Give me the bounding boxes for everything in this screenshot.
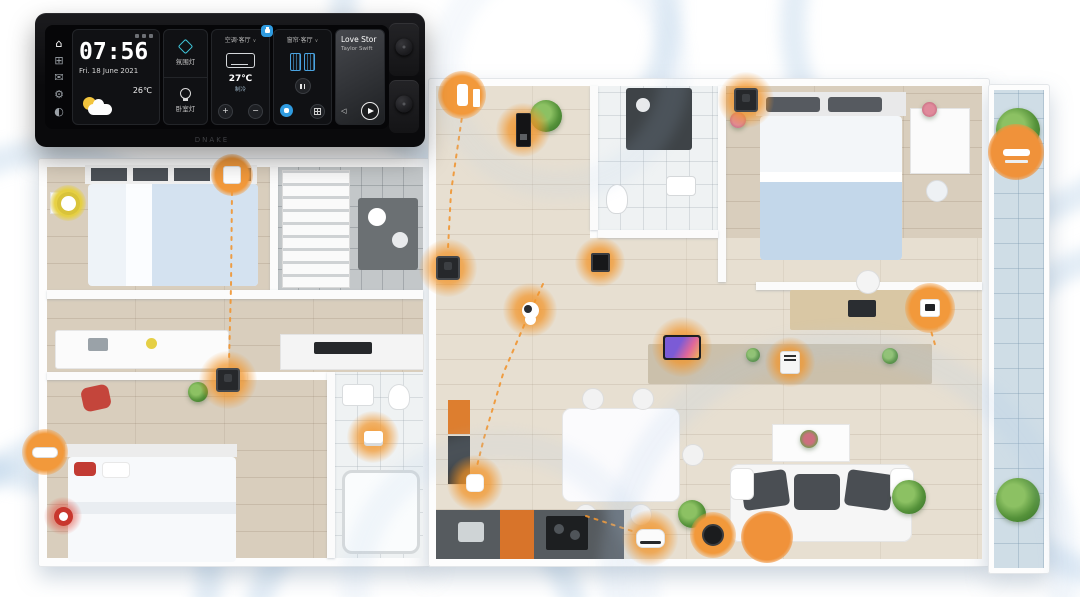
curtain-title[interactable]: 窗帘·客厅 ∨ — [287, 35, 319, 44]
flat-sensor-icon — [364, 431, 383, 443]
cooktop — [546, 516, 588, 550]
study-wall-switch-marker[interactable] — [199, 351, 257, 409]
toilet1 — [606, 184, 628, 214]
light-label: 氛围灯 — [176, 56, 196, 66]
balcony-device-marker[interactable] — [988, 124, 1044, 180]
ac-temperature: 27℃ — [229, 74, 252, 84]
chevron-down-icon: ∨ — [253, 38, 257, 44]
apps-icon[interactable]: ⊞ — [54, 55, 63, 66]
song-title: Love Stor — [341, 35, 379, 44]
living-speaker-marker[interactable] — [690, 512, 736, 558]
curtain-icon — [290, 53, 315, 71]
sideboard-tablet-marker[interactable] — [652, 317, 712, 377]
clock-card[interactable]: 07:56 Fri. 18 June 2021 26℃ — [72, 29, 160, 125]
kitchen-switch-marker[interactable] — [447, 455, 503, 511]
kitchen-sink — [458, 522, 484, 542]
curtain-pause-button[interactable] — [295, 78, 311, 94]
mail-icon[interactable]: ✉ — [54, 72, 63, 83]
previous-track-icon[interactable]: ◁ — [341, 107, 346, 115]
tablet-icon — [663, 335, 701, 360]
toilet2 — [388, 384, 410, 410]
rounded-switch-icon — [466, 474, 484, 492]
shower-head — [636, 98, 650, 112]
curtain-card[interactable]: 窗帘·客厅 ∨ — [273, 29, 332, 125]
gateway-icon — [636, 529, 665, 548]
sofa-cushion — [844, 469, 895, 511]
small-black-panel-icon — [591, 253, 610, 272]
bed1-blanket — [150, 184, 258, 286]
physical-key-bottom[interactable] — [389, 80, 419, 133]
song-artist: Taylor Swift — [341, 46, 379, 52]
white-panel-icon — [223, 166, 241, 184]
smart-home-scene: ⌂ ⊞ ✉ ⚙ ◐ 07:56 Fri. 18 June 2021 26℃ — [0, 0, 1080, 597]
shower-dark — [626, 88, 692, 150]
tv — [314, 342, 372, 354]
entry-door-sensor-marker[interactable] — [438, 71, 486, 119]
play-button[interactable] — [361, 102, 379, 120]
bathroom-sensor-marker[interactable] — [347, 411, 399, 463]
desk-device-marker[interactable] — [905, 283, 955, 333]
right-desk-chair — [856, 270, 880, 294]
bedside-lamp-marker[interactable] — [50, 185, 86, 221]
desk-laptop — [88, 338, 108, 351]
window-sensor-marker[interactable] — [22, 429, 68, 475]
desk-lamp-yellow — [146, 338, 157, 349]
panel-screen: ⌂ ⊞ ✉ ⚙ ◐ 07:56 Fri. 18 June 2021 26℃ — [45, 25, 389, 129]
outdoor-temperature: 26℃ — [133, 86, 152, 95]
black-switch-icon — [734, 88, 758, 112]
black-switch-icon — [216, 368, 240, 392]
sink2 — [342, 384, 374, 406]
entry-intercom-marker[interactable] — [496, 103, 550, 157]
sos-icon — [54, 507, 73, 526]
white-pill-icon — [32, 447, 58, 458]
hallway-camera-marker[interactable] — [503, 283, 557, 337]
ac-plus-button[interactable]: + — [218, 104, 233, 119]
hallway-switch-marker[interactable] — [419, 239, 477, 297]
knob-icon — [396, 38, 413, 55]
sofa-pillow — [730, 468, 754, 500]
home-icon[interactable]: ⌂ — [56, 38, 63, 49]
music-card[interactable]: Love Stor Taylor Swift ◁ — [335, 29, 385, 125]
ac-card[interactable]: 空调·客厅 ∨ 27℃ 制冷 + − — [211, 29, 270, 125]
lamp-icon — [57, 192, 80, 215]
panel-sidebar: ⌂ ⊞ ✉ ⚙ ◐ — [49, 29, 69, 125]
ac-mode: 制冷 — [235, 85, 246, 93]
settings-icon[interactable]: ⚙ — [54, 89, 64, 100]
plant-sofa-right — [892, 480, 926, 514]
desk-device-icon — [920, 299, 940, 317]
master-pillow-dark1 — [766, 97, 820, 112]
sofa-cushion — [794, 474, 840, 510]
network-icon[interactable]: ◐ — [54, 106, 64, 117]
speaker-icon — [702, 524, 724, 546]
master-duvet — [760, 180, 902, 260]
sos-button-marker[interactable] — [44, 497, 82, 535]
bathroom-switch-marker[interactable] — [575, 237, 625, 287]
wall — [590, 86, 598, 230]
knob-icon — [396, 95, 413, 112]
panel-physical-keys — [389, 23, 419, 133]
bed1-fold — [126, 184, 152, 286]
master-pillow-dark2 — [828, 97, 882, 112]
weather-icon — [81, 97, 115, 117]
chevron-down-icon: ∨ — [315, 38, 319, 44]
kitchen-tall-cabinet — [448, 400, 470, 434]
flowers-coffee-table — [800, 430, 818, 448]
laundry-mat — [358, 198, 418, 270]
plant-sideboard1 — [746, 348, 760, 362]
calendar-icon — [135, 34, 139, 38]
bed2-pillow-red — [74, 462, 96, 476]
ac-minus-button[interactable]: − — [248, 104, 263, 119]
dining-chair — [582, 388, 604, 410]
cloud-icon — [88, 104, 112, 115]
bed2-fold — [68, 502, 236, 514]
battery-icon — [149, 34, 153, 38]
black-switch-icon — [436, 256, 460, 280]
wall — [47, 290, 423, 299]
lock-icon — [261, 25, 273, 37]
bulb-icon — [180, 88, 191, 99]
light-label: 卧室灯 — [176, 103, 196, 113]
physical-key-top[interactable] — [389, 23, 419, 76]
bed2-headboard — [65, 444, 237, 457]
intercom-icon — [516, 113, 531, 147]
ac-unit-icon — [226, 53, 255, 68]
curtain-blinds-button[interactable] — [310, 104, 325, 119]
clock-date: Fri. 18 June 2021 — [79, 67, 153, 75]
ac-title[interactable]: 空调·客厅 ∨ — [225, 35, 257, 44]
wall — [270, 167, 278, 290]
cooktop-burner — [554, 524, 564, 534]
smart-control-panel: ⌂ ⊞ ✉ ⚙ ◐ 07:56 Fri. 18 June 2021 26℃ — [35, 13, 425, 147]
master-wall-panel-marker[interactable] — [718, 72, 774, 128]
dining-chair — [632, 388, 654, 410]
light-ambient-button[interactable]: 氛围灯 — [164, 30, 207, 77]
brand-logo: DNAKE — [35, 136, 389, 144]
dryer — [392, 232, 408, 248]
living-orange-node-marker[interactable] — [741, 511, 793, 563]
status-icons — [79, 34, 153, 38]
balcony-bar-icon — [1003, 149, 1030, 156]
kitchen-cabinet-orange — [500, 510, 534, 559]
bedroom1-wall-panel-marker[interactable] — [211, 154, 253, 196]
camera-icon — [522, 302, 539, 319]
door-sensor-icon — [457, 84, 468, 106]
washer — [368, 208, 386, 226]
vanity-chair — [926, 180, 948, 202]
smart-gateway-marker[interactable] — [622, 510, 678, 566]
cube-icon — [780, 351, 800, 374]
plant-balcony-bottom — [996, 478, 1040, 522]
vanity-desk — [910, 108, 970, 174]
plant-sideboard2 — [882, 348, 898, 364]
light-bedroom-button[interactable]: 卧室灯 — [164, 77, 207, 125]
flowers-vanity — [922, 102, 937, 117]
cooktop-burner — [570, 530, 580, 540]
bed2-pillow — [102, 462, 130, 478]
master-fold — [760, 172, 902, 182]
sink1 — [666, 176, 696, 196]
ambient-light-icon — [178, 38, 194, 54]
curtain-open-button[interactable] — [280, 104, 293, 117]
wifi-icon — [142, 34, 146, 38]
sideboard-cube-marker[interactable] — [765, 337, 815, 387]
dining-chair — [682, 444, 704, 466]
clock-time: 07:56 — [79, 39, 153, 65]
dining-table — [562, 408, 680, 502]
right-desk-laptop — [848, 300, 876, 317]
closet-shelves — [282, 170, 350, 288]
bathtub — [342, 470, 420, 554]
wall — [327, 372, 335, 558]
lights-card: 氛围灯 卧室灯 — [163, 29, 208, 125]
